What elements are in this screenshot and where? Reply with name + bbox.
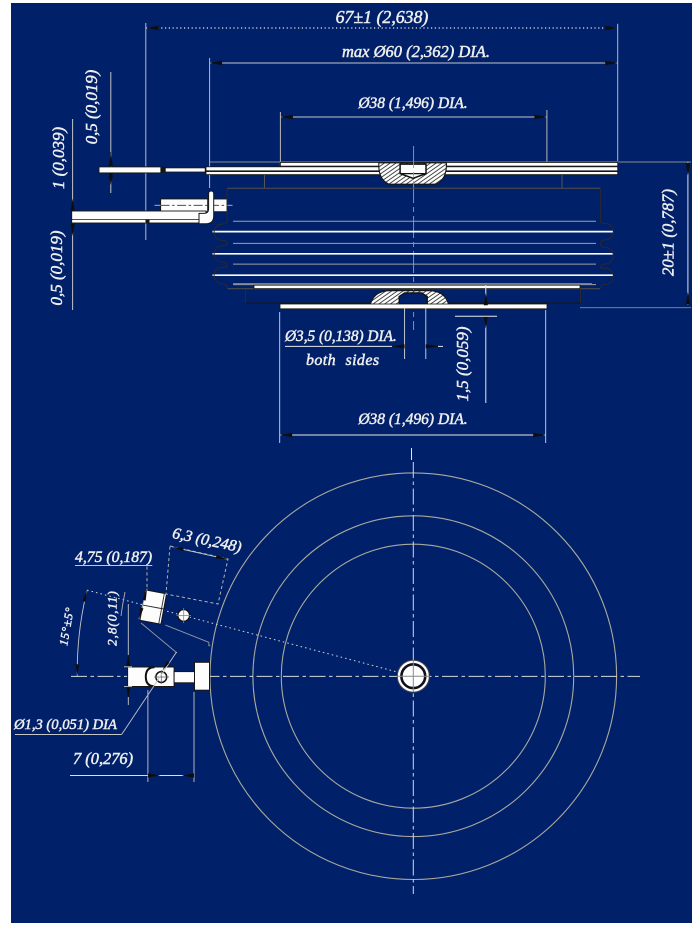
svg-text:max Ø60 (2,362) DIA.: max Ø60 (2,362) DIA. <box>342 42 490 61</box>
svg-text:Ø38 (1,496) DIA.: Ø38 (1,496) DIA. <box>357 411 467 428</box>
svg-text:4,75 (0,187): 4,75 (0,187) <box>75 549 152 566</box>
svg-text:0,5 (0,019): 0,5 (0,019) <box>82 69 101 144</box>
svg-text:Ø38 (1,496) DIA.: Ø38 (1,496) DIA. <box>357 95 467 112</box>
svg-text:Ø3,5 (0,138) DIA.: Ø3,5 (0,138) DIA. <box>284 328 397 345</box>
svg-text:2,8(0,11): 2,8(0,11) <box>105 590 120 646</box>
svg-text:20±1 (0,787): 20±1 (0,787) <box>659 189 678 276</box>
svg-text:67±1 (2,638): 67±1 (2,638) <box>336 7 429 28</box>
svg-text:7 (0,276): 7 (0,276) <box>73 749 133 768</box>
svg-text:both sides: both sides <box>306 352 379 369</box>
svg-text:Ø1,3 (0,051) DIA: Ø1,3 (0,051) DIA <box>13 717 117 733</box>
svg-text:0,5 (0,019): 0,5 (0,019) <box>47 230 66 305</box>
svg-text:1 (0,039): 1 (0,039) <box>49 127 68 190</box>
svg-text:1,5 (0,059): 1,5 (0,059) <box>453 326 472 401</box>
